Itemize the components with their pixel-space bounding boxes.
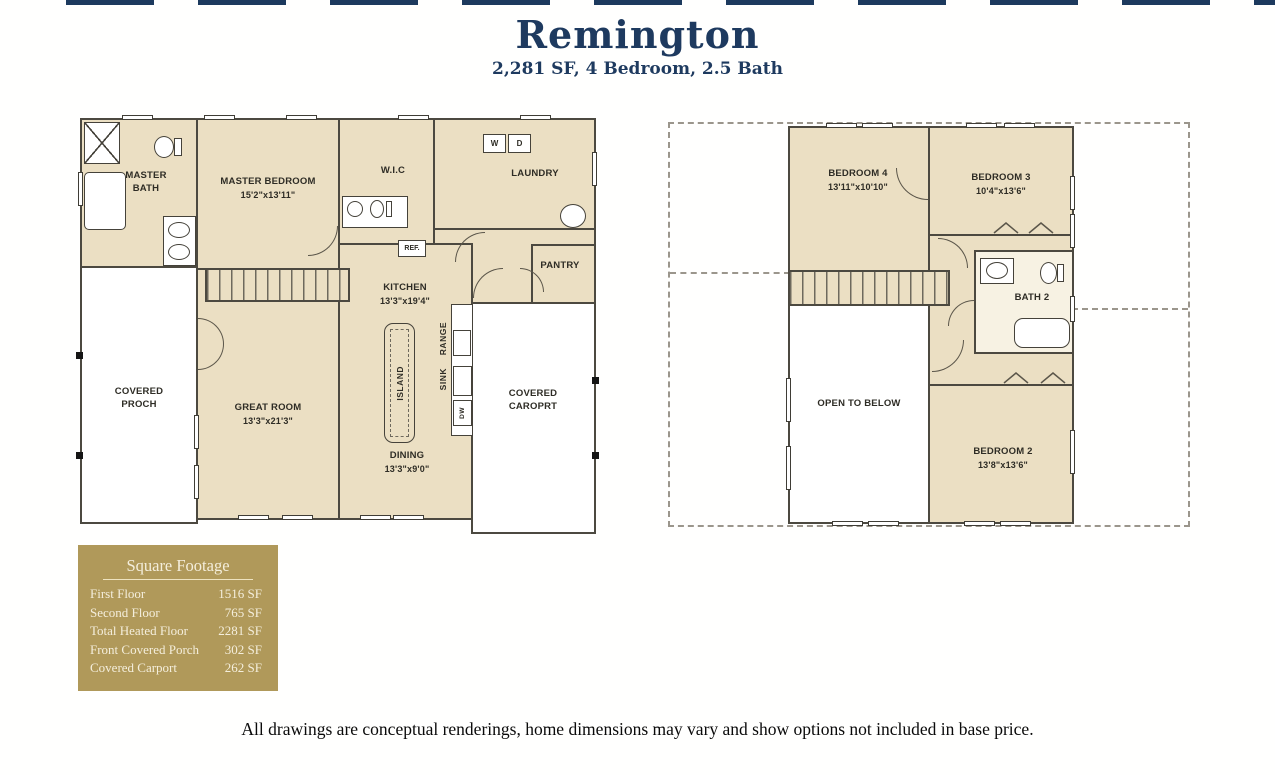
top-border-strip: [66, 0, 1275, 5]
window: [1070, 296, 1075, 322]
window: [204, 115, 235, 120]
sink-icon: [453, 366, 472, 396]
square-footage-title: Square Footage: [103, 556, 253, 580]
room-label-open-to-below: OPEN TO BELOW: [806, 398, 912, 411]
room-label-bath2: BATH 2: [1002, 292, 1062, 305]
stairs-second-floor: [788, 270, 950, 306]
window: [282, 515, 313, 520]
table-row: Total Heated Floor 2281 SF: [78, 622, 278, 641]
bifold-door-icon: [1028, 222, 1054, 234]
window: [194, 465, 199, 499]
window: [786, 378, 791, 422]
window: [360, 515, 391, 520]
floor-plan-sheet: Remington 2,281 SF, 4 Bedroom, 2.5 Bath …: [0, 0, 1275, 775]
window: [393, 515, 424, 520]
toilet-icon: [370, 200, 384, 218]
porch-post: [76, 452, 83, 459]
toilet-tank-icon: [174, 138, 182, 156]
window: [1070, 176, 1075, 210]
room-label-wic: W.I.C: [368, 165, 418, 178]
dryer-label: D: [517, 139, 523, 148]
room-label-covered-carport: COVERED CAROPRT: [498, 388, 568, 414]
kitchen-island: ISLAND: [384, 323, 415, 443]
porch-post: [76, 352, 83, 359]
island-label: ISLAND: [395, 366, 405, 401]
vanity-sink-icon: [986, 262, 1008, 279]
washer-label: W: [491, 139, 499, 148]
window: [966, 123, 997, 128]
room-great-room: [196, 268, 340, 520]
sink-label: SINK: [438, 368, 448, 390]
carport-post: [592, 452, 599, 459]
table-row: Front Covered Porch 302 SF: [78, 641, 278, 660]
carport-post: [592, 377, 599, 384]
room-label-laundry: LAUNDRY: [500, 168, 570, 181]
utility-sink-icon: [560, 204, 586, 228]
window: [832, 521, 863, 526]
table-row: Covered Carport 262 SF: [78, 659, 278, 678]
window: [868, 521, 899, 526]
shower-icon: [84, 122, 120, 164]
window: [964, 521, 995, 526]
island-counter: ISLAND: [390, 329, 409, 437]
toilet-icon: [154, 136, 174, 158]
window: [862, 123, 893, 128]
bifold-door-icon: [1003, 372, 1029, 384]
stairs-first-floor: [205, 268, 350, 302]
room-covered-carport: [471, 302, 596, 534]
dishwasher-box: DW: [453, 400, 472, 426]
window: [286, 115, 317, 120]
toilet-tank-icon: [386, 201, 392, 217]
window: [194, 415, 199, 449]
toilet-tank-icon: [1057, 264, 1064, 282]
room-label-covered-porch: COVERED PROCH: [108, 386, 170, 412]
room-label-dining: DINING 13'3"x9'0": [362, 450, 452, 475]
ref-label: REF.: [404, 245, 419, 252]
page-title: Remington: [0, 12, 1275, 57]
room-bedroom4: [788, 126, 930, 272]
dryer-box: D: [508, 134, 531, 153]
window: [1070, 430, 1075, 474]
square-footage-table: Square Footage First Floor 1516 SF Secon…: [78, 545, 278, 691]
page-subtitle: 2,281 SF, 4 Bedroom, 2.5 Bath: [0, 59, 1275, 79]
window: [592, 152, 597, 186]
roof-break-dashed: [670, 272, 790, 274]
window: [1004, 123, 1035, 128]
table-row: Second Floor 765 SF: [78, 604, 278, 623]
room-label-kitchen: KITCHEN 13'3"x19'4": [360, 282, 450, 307]
room-open-to-below: [788, 304, 930, 524]
sink-icon: [347, 201, 363, 217]
bifold-door-icon: [1040, 372, 1066, 384]
vanity-sink-icon: [168, 222, 190, 238]
pantry-wall: [531, 244, 596, 246]
room-label-master-bath: MASTER BATH: [113, 170, 179, 196]
room-label-great-room: GREAT ROOM 13'3"x21'3": [212, 402, 324, 427]
fridge-box: REF.: [398, 240, 426, 257]
window: [78, 172, 83, 206]
room-label-bedroom3: BEDROOM 3 10'4"x13'6": [946, 172, 1056, 197]
bifold-door-icon: [993, 222, 1019, 234]
room-label-master-bedroom: MASTER BEDROOM 15'2"x13'11": [206, 176, 330, 201]
range-label: RANGE: [438, 322, 448, 355]
disclaimer-text: All drawings are conceptual renderings, …: [0, 719, 1275, 740]
room-label-bedroom2: BEDROOM 2 13'8"x13'6": [948, 446, 1058, 471]
tub-icon: [1014, 318, 1070, 348]
window: [786, 446, 791, 490]
range-icon: [453, 330, 471, 356]
roof-break-dashed: [1072, 308, 1188, 310]
dw-label: DW: [459, 407, 466, 419]
washer-box: W: [483, 134, 506, 153]
window: [520, 115, 551, 120]
window: [398, 115, 429, 120]
table-row: First Floor 1516 SF: [78, 585, 278, 604]
room-label-pantry: PANTRY: [530, 260, 590, 273]
vanity-sink-icon: [168, 244, 190, 260]
window: [826, 123, 857, 128]
window: [238, 515, 269, 520]
window: [1000, 521, 1031, 526]
window: [122, 115, 153, 120]
window: [1070, 214, 1075, 248]
room-label-bedroom4: BEDROOM 4 13'11"x10'10": [800, 168, 916, 193]
toilet-icon: [1040, 262, 1057, 284]
